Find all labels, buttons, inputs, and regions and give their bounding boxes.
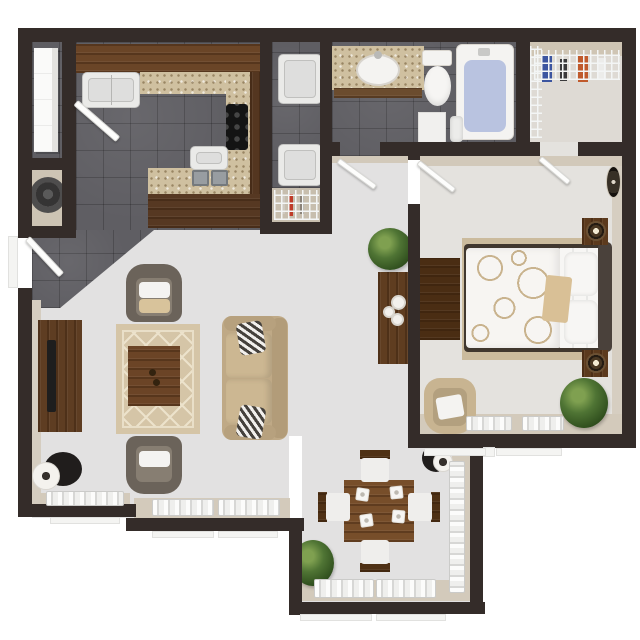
wall-top [18, 28, 636, 42]
plate-2 [389, 485, 403, 499]
wire-closet-shelf [274, 190, 319, 220]
sill-dining-1 [300, 614, 372, 621]
wall-step-vertical [289, 518, 302, 615]
sill-living-mid-2 [218, 531, 278, 538]
dishwasher [190, 146, 228, 170]
pantry-shelves [34, 48, 58, 152]
window-living-left [46, 491, 124, 506]
bathtub-water [464, 60, 506, 132]
window-dining-1 [314, 579, 374, 598]
wall-bedroom-left-lower [408, 204, 420, 448]
wall-bath-bottom-b [380, 142, 540, 156]
bedroom-plant [560, 378, 608, 428]
candle-3 [391, 313, 404, 326]
kitchen-sink-left [192, 170, 209, 186]
sill-bedroom-1 [424, 448, 486, 456]
plate-1 [355, 487, 370, 502]
coffee-table-decor-1 [149, 369, 156, 376]
plate-4 [391, 509, 405, 523]
wall-pantry-divider [18, 158, 76, 170]
dryer [278, 144, 322, 186]
table-lamp-top [586, 221, 606, 241]
dining-chair-right-back [431, 492, 440, 522]
sink-faucet [374, 51, 382, 59]
armchair-top-pillow-tan [139, 299, 170, 313]
dining-chair-right-seat [408, 493, 432, 521]
cooktop [226, 104, 248, 150]
wall-dining-bottom [289, 602, 485, 614]
floor-lamp-shade [32, 462, 60, 490]
dining-chair-bottom-back [360, 563, 390, 572]
dining-chair-left-seat [326, 493, 350, 521]
sofa-back [272, 318, 287, 438]
bedroom-wall-base-top [420, 156, 622, 166]
sill-living-left [50, 517, 120, 524]
entry-landing [8, 236, 18, 288]
wall-dining-right [470, 444, 483, 614]
window-living-mid-1 [152, 499, 214, 516]
candle-2 [391, 295, 406, 310]
window-bedroom-1 [466, 416, 512, 431]
floor-plan [0, 0, 640, 640]
sill-living-mid-1 [152, 531, 214, 538]
headboard [598, 242, 612, 352]
plate-3 [359, 513, 374, 528]
toilet-bowl [424, 66, 451, 106]
washer [278, 54, 322, 104]
wall-bedroom-bottom [408, 434, 636, 448]
bath-mat [418, 112, 446, 144]
wall-bath-bottom-c [578, 142, 622, 156]
dining-chair-top-seat [361, 458, 389, 482]
wall-left-upper [18, 28, 32, 236]
water-heater [30, 177, 66, 213]
toilet-tank [422, 50, 452, 66]
window-bedroom-2 [522, 416, 564, 431]
coffee-table [128, 346, 180, 406]
bed-throw [542, 275, 573, 323]
bathtub-faucet [478, 48, 490, 56]
vanity-front [334, 88, 422, 98]
wall-laundry-bath [320, 42, 332, 234]
kitchen-upper-cabinets [72, 44, 262, 73]
wall-laundry-bottom [260, 222, 332, 234]
wall-closet-bath [516, 28, 530, 142]
sill-bedroom-2 [496, 448, 562, 456]
wall-waterheater-bottom [18, 226, 76, 238]
wall-step-bottom [126, 518, 304, 531]
window-living-mid-2 [218, 499, 280, 516]
bedroom-wall-base-right [612, 166, 622, 434]
wall-closets-kitchen [62, 28, 76, 234]
armchair-top-pillow [139, 282, 170, 298]
hall-plant [368, 228, 412, 270]
sofa-pillow-top [235, 320, 266, 356]
closet-door-threshold [540, 142, 578, 156]
wall-right [622, 28, 636, 448]
bath-towel [450, 116, 463, 142]
dresser [418, 258, 460, 340]
refrigerator [82, 72, 140, 108]
table-lamp-bottom [586, 353, 606, 373]
closet-shelf-top [534, 50, 620, 80]
sofa-pillow-bottom [235, 404, 266, 440]
wall-left-lower [18, 288, 32, 517]
armchair-bottom-pillow [139, 451, 170, 467]
kitchen-sink-right [211, 170, 228, 186]
coffee-table-decor-2 [153, 379, 160, 386]
bedroom-chair-blanket [435, 394, 464, 420]
tv-console [38, 320, 82, 432]
tv [47, 340, 56, 412]
window-dining-2 [376, 579, 436, 598]
window-dining-right [449, 461, 465, 593]
kitchen-bar-bottom [148, 194, 268, 228]
wall-kitchen-laundry [260, 42, 272, 234]
wall-clock [606, 166, 621, 198]
sill-dining-2 [376, 614, 446, 621]
dining-chair-bottom-seat [361, 540, 389, 564]
